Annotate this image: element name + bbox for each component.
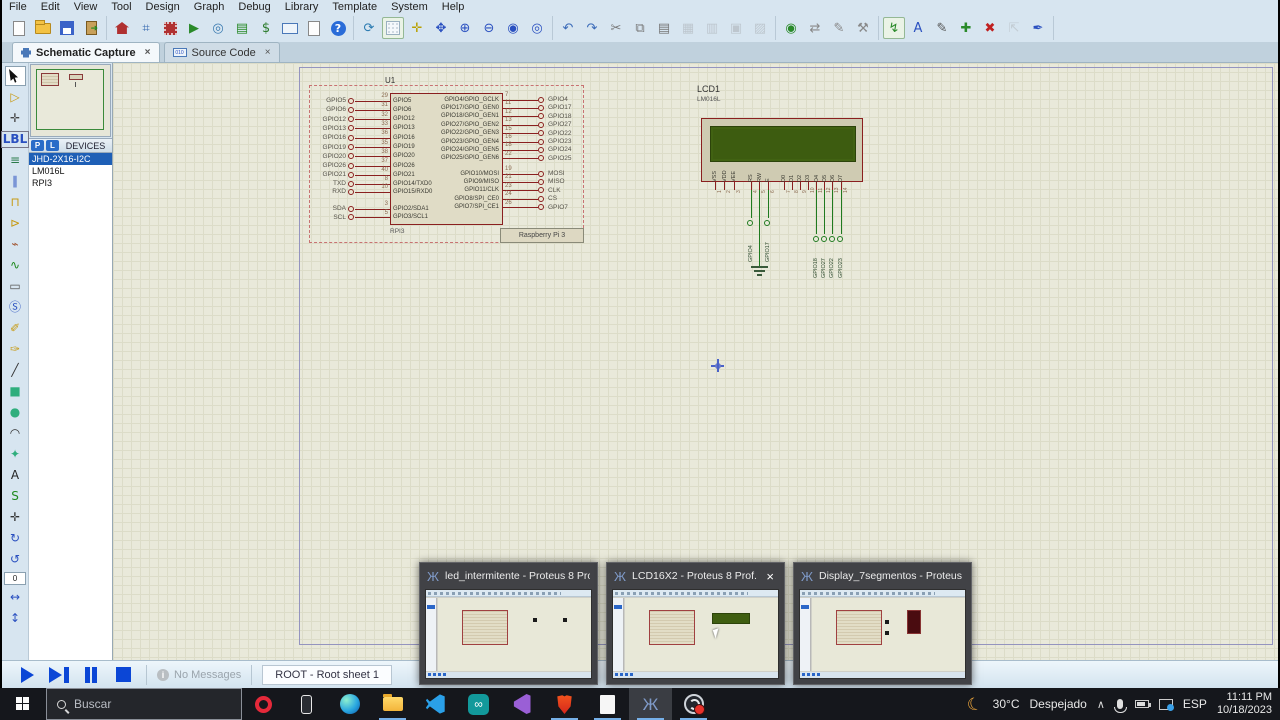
mini-rpi-component	[649, 610, 695, 645]
lcd-pin-stub	[715, 182, 716, 190]
wire-autorouter-button[interactable]: ↯	[883, 17, 905, 39]
terminal-label-GPIO26: GPIO26	[310, 162, 346, 170]
rotate-clockwise-button[interactable]: ↻	[5, 528, 26, 548]
lcd-screen	[710, 126, 856, 162]
pin-name-GPIO18-GPIO_GEN1: GPIO18/GPIO_GEN1	[429, 113, 499, 120]
zoom-all-icon: ◉	[507, 22, 518, 35]
block-delete-icon: ▨	[754, 22, 766, 35]
lcd-pin-label-D2: D2	[797, 164, 804, 182]
menu-tool[interactable]: Tool	[104, 0, 138, 14]
2d-box-mode-icon: ■	[9, 385, 20, 398]
main-toolbar: ⌗▶◎▤$?⟳✛✥⊕⊖◉◎↶↷✂⧉▤▦▥▣▨◉⇄✎⚒↯A✎✚✖⇱✒	[2, 14, 1278, 42]
text-script-mode-button[interactable]: ≡	[5, 150, 26, 170]
mini-window	[426, 590, 591, 678]
preview-thumbnail[interactable]	[612, 589, 779, 679]
terminal-circle	[348, 98, 354, 104]
search-input[interactable]	[74, 697, 204, 711]
terminal-circle	[538, 196, 544, 202]
pin-wire	[503, 207, 538, 208]
proteus-taskbar-button[interactable]: Ж	[629, 688, 672, 720]
2d-circle-mode-button[interactable]: ●	[5, 402, 26, 422]
current-probe-mode-icon: ✑	[10, 343, 20, 356]
lcd-pin-number: 6	[770, 183, 776, 193]
terminal-label-GPIO16: GPIO16	[310, 134, 346, 142]
terminal-GPIO17[interactable]	[764, 220, 770, 226]
new-design-button[interactable]	[8, 17, 30, 39]
component-ref-lcd1: LCD1	[697, 84, 720, 94]
decompose-button[interactable]: ⚒	[852, 17, 874, 39]
menu-graph[interactable]: Graph	[187, 0, 232, 14]
redo-button[interactable]: ↷	[581, 17, 603, 39]
terminal-label-RXD: RXD	[310, 188, 346, 196]
junction-dot-mode-button[interactable]: ✛	[5, 108, 26, 128]
2d-arc-mode-icon: ◠	[10, 427, 20, 440]
arduino-ide-taskbar-button[interactable]: ∞	[457, 688, 500, 720]
y-mirror-button[interactable]: ↕	[5, 608, 26, 628]
edge-icon	[340, 694, 360, 714]
home-page-button[interactable]	[111, 17, 133, 39]
help-icon: ?	[331, 21, 346, 36]
cut-button[interactable]: ✂	[605, 17, 627, 39]
terminal-label-GPIO27: GPIO27	[548, 121, 584, 129]
lcd-pin-number: 10	[810, 183, 816, 193]
pin-name-GPIO4-GPIO_GCLK: GPIO4/GPIO_GCLK	[429, 97, 499, 104]
2d-arc-mode-button[interactable]: ◠	[5, 423, 26, 443]
pcb-layout-icon	[164, 22, 177, 35]
subcircuit-mode-button[interactable]: ⊓	[5, 192, 26, 212]
preview-window-2[interactable]: ЖDisplay_7segmentos - Proteus 8...	[793, 562, 972, 685]
3d-visualizer-icon: ▶	[189, 22, 199, 35]
terminal-label-GPIO25: GPIO25	[548, 155, 584, 163]
lcd-pin-number: 11	[818, 183, 824, 193]
taskbar-search[interactable]	[46, 688, 242, 720]
2d-marker-mode-button[interactable]: ✛	[5, 507, 26, 527]
generator-mode-button[interactable]: Ⓢ	[5, 297, 26, 317]
lcd-pin-label-D6: D6	[830, 164, 837, 182]
generator-mode-icon: Ⓢ	[9, 301, 21, 314]
buses-mode-button[interactable]: ∥	[5, 171, 26, 191]
terminals-mode-icon: ⊳	[10, 217, 20, 230]
tape-recorder-mode-button[interactable]: ▭	[5, 276, 26, 296]
terminal-label-GPIO4: GPIO4	[548, 96, 584, 104]
rpi3-component[interactable]: GPIO529GPIO5GPIO631GPIO6GPIO1232GPIO12GP…	[309, 85, 584, 243]
pin-name-GPIO10-MOSI: GPIO10/MOSI	[429, 171, 499, 178]
pin-number: 33	[362, 121, 388, 128]
close-project-button[interactable]	[80, 17, 102, 39]
redo-icon: ↷	[587, 22, 598, 35]
pick-parts-button[interactable]: ◉	[780, 17, 802, 39]
preview-close-icon[interactable]: ×	[763, 569, 777, 584]
pin-name-GPIO9-MISO: GPIO9/MISO	[429, 179, 499, 186]
pin-number: 12	[505, 109, 531, 116]
mini-lcd	[712, 613, 750, 624]
pin-number: 36	[362, 130, 388, 137]
preview-header: ЖLCD16X2 - Proteus 8 Prof...×	[607, 563, 784, 589]
terminal-label-GPIO17: GPIO17	[765, 230, 772, 262]
gerber-viewer-button[interactable]: ◎	[207, 17, 229, 39]
file-explorer-taskbar-button[interactable]	[371, 688, 414, 720]
pin-name-GPIO23-GPIO_GEN4: GPIO23/GPIO_GEN4	[429, 139, 499, 146]
terminal-wire-GPIO23	[841, 190, 842, 234]
home-page-icon	[115, 22, 129, 34]
terminals-mode-button[interactable]: ⊳	[5, 213, 26, 233]
paste-button[interactable]: ▤	[653, 17, 675, 39]
pin-name-GPIO16: GPIO16	[393, 135, 415, 142]
weather-moon-icon[interactable]: ☾	[965, 694, 984, 714]
pin-name-GPIO11-CLK: GPIO11/CLK	[429, 187, 499, 194]
close-tab-icon[interactable]: ×	[265, 47, 271, 58]
pin-number: 29	[362, 93, 388, 100]
taskbar-apps: ∞Ж	[242, 688, 715, 720]
terminal-wire-GPIO4	[751, 190, 752, 218]
device-list: JHD-2X16-I2CLM016LRPI3	[29, 153, 112, 660]
new-root-sheet-button[interactable]: ✚	[955, 17, 977, 39]
tape-recorder-mode-icon: ▭	[9, 280, 20, 293]
close-project-icon	[86, 21, 97, 35]
rotation-angle-field[interactable]: 0	[4, 572, 26, 585]
component-ref-u1: U1	[385, 76, 395, 85]
goto-parent-sheet-icon: ⇱	[1009, 22, 1020, 35]
pin-wire	[355, 192, 390, 193]
visual-studio-taskbar-button[interactable]	[500, 688, 543, 720]
terminal-label-GPIO19: GPIO19	[310, 144, 346, 152]
lcd-pin-stub	[734, 182, 735, 190]
lcd-pin-number: 8	[794, 183, 800, 193]
battery-icon[interactable]	[1135, 700, 1149, 708]
clock-date: 10/18/2023	[1217, 704, 1272, 717]
no-messages-label: No Messages	[174, 669, 241, 681]
toolbar-group-3: ↶↷✂⧉▤▦▥▣▨	[553, 16, 776, 40]
menu-system[interactable]: System	[384, 0, 435, 14]
raspberry-pi3-box: Raspberry Pi 3	[500, 228, 584, 243]
taskbar-previews: Жled_intermitente - Proteus 8 Pro...ЖLCD…	[419, 562, 972, 685]
mini-selected-device	[801, 605, 809, 609]
toolbar-group-5: ↯A✎✚✖⇱✒	[879, 16, 1054, 40]
zoom-out-button[interactable]: ⊖	[478, 17, 500, 39]
terminal-label-GPIO18: GPIO18	[813, 246, 820, 278]
toolbar-group-0	[4, 16, 107, 40]
windows-logo-icon	[16, 697, 30, 711]
2d-line-mode-button[interactable]: ╱	[5, 360, 26, 380]
proteus-icon: Ж	[643, 696, 659, 713]
pin-name-GPIO26: GPIO26	[393, 163, 415, 170]
block-copy-icon: ▦	[682, 22, 694, 35]
terminal-label-CLK: CLK	[548, 187, 584, 195]
terminal-label-GPIO24: GPIO24	[548, 146, 584, 154]
terminal-circle	[538, 187, 544, 193]
left-panel: P L DEVICES JHD-2X16-I2CLM016LRPI3	[29, 63, 113, 660]
lcd-pin-label-D0: D0	[781, 164, 788, 182]
current-probe-mode-button[interactable]: ✑	[5, 339, 26, 359]
mini-status-bar	[613, 672, 778, 678]
lcd-pin-number: 12	[826, 183, 832, 193]
graph-mode-button[interactable]: ∿	[5, 255, 26, 275]
2d-box-mode-button[interactable]: ■	[5, 381, 26, 401]
rotate-clockwise-icon: ↻	[10, 532, 20, 545]
source-code-tab-icon: 010	[173, 48, 187, 57]
false-origin-button[interactable]: ✛	[406, 17, 428, 39]
phone-link-icon	[301, 695, 312, 714]
lcd-pin-stub	[768, 182, 769, 190]
start-button[interactable]	[0, 688, 46, 720]
preview-title: led_intermitente - Proteus 8 Pro...	[445, 570, 590, 582]
project-notes-icon	[308, 21, 320, 36]
clock[interactable]: 11:11 PM 10/18/2023	[1217, 691, 1272, 717]
2d-line-mode-icon: ╱	[11, 364, 18, 377]
electrical-rule-check-icon: ✒	[1033, 22, 1044, 35]
obs-studio-taskbar-button[interactable]	[672, 688, 715, 720]
lcd-pin-stub	[724, 182, 725, 190]
close-tab-icon[interactable]: ×	[145, 47, 151, 58]
remove-sheet-button[interactable]: ✖	[979, 17, 1001, 39]
packaging-tool-button[interactable]: ✎	[828, 17, 850, 39]
pin-name-GPIO15-RXD0: GPIO15/RXD0	[393, 189, 432, 196]
menu-help[interactable]: Help	[435, 0, 472, 14]
clock-time: 11:11 PM	[1217, 691, 1272, 704]
pin-name-GPIO19: GPIO19	[393, 144, 415, 151]
terminal-wire-GPIO17	[768, 190, 769, 218]
ground-symbol	[757, 274, 762, 276]
selection-mode-button[interactable]	[5, 66, 26, 86]
2d-symbol-mode-button[interactable]: S	[5, 486, 26, 506]
vscode-taskbar-button[interactable]	[414, 688, 457, 720]
terminal-circle	[348, 144, 354, 150]
mini-led	[533, 618, 537, 622]
ground-symbol	[754, 270, 765, 272]
source-code-tool-button[interactable]	[279, 17, 301, 39]
mini-toolbar	[426, 590, 591, 597]
pin-number: 7	[505, 92, 531, 99]
pin-number: 13	[505, 117, 531, 124]
terminal-circle	[348, 181, 354, 187]
terminal-label-MISO: MISO	[548, 178, 584, 186]
remove-sheet-icon: ✖	[985, 22, 996, 35]
junction-dot-mode-icon: ✛	[10, 112, 20, 125]
mini-left-panel	[800, 598, 811, 671]
pick-devices-button[interactable]: P	[31, 140, 44, 151]
tab-schematic-capture[interactable]: Schematic Capture ×	[12, 42, 160, 62]
arduino-ide-icon: ∞	[468, 694, 489, 715]
2d-path-mode-icon: ✦	[10, 448, 20, 461]
terminal-label-GPIO17: GPIO17	[548, 104, 584, 112]
language-indicator[interactable]: ESP	[1183, 697, 1207, 711]
toolbar-group-4: ◉⇄✎⚒	[776, 16, 879, 40]
preview-thumbnail[interactable]	[425, 589, 592, 679]
preview-window-1[interactable]: ЖLCD16X2 - Proteus 8 Prof...×	[606, 562, 785, 685]
stop-button[interactable]	[110, 665, 136, 685]
lcd-pin-number: 2	[726, 183, 732, 193]
electrical-rule-check-button[interactable]: ✒	[1027, 17, 1049, 39]
weather-desc[interactable]: Despejado	[1029, 697, 1086, 711]
devices-header: P L DEVICES	[29, 138, 112, 153]
pin-number: 37	[362, 158, 388, 165]
goto-parent-sheet-button: ⇱	[1003, 17, 1025, 39]
play-button[interactable]	[14, 665, 40, 685]
redraw-display-icon: ⟳	[364, 22, 375, 35]
brave-taskbar-button[interactable]	[543, 688, 586, 720]
terminal-circle	[538, 139, 544, 145]
pin-number: 16	[505, 134, 531, 141]
bill-of-materials-button[interactable]: $	[255, 17, 277, 39]
phone-link-taskbar-button[interactable]	[285, 688, 328, 720]
3d-visualizer-button[interactable]: ▶	[183, 17, 205, 39]
device-pins-mode-icon: ⌁	[11, 238, 18, 251]
rotate-anticlockwise-icon: ↺	[10, 553, 20, 566]
message-area: i No Messages	[157, 669, 241, 681]
2d-text-mode-button[interactable]: A	[5, 465, 26, 485]
center-at-cursor-button[interactable]: ✥	[430, 17, 452, 39]
pin-number: 31	[362, 102, 388, 109]
pin-name-GPIO14-TXD0: GPIO14/TXD0	[393, 181, 432, 188]
pin-name-GPIO2-SDA1: GPIO2/SDA1	[393, 206, 429, 213]
proteus-logo-icon: Ж	[801, 570, 813, 583]
pcb-layout-button[interactable]	[159, 17, 181, 39]
save-design-button[interactable]	[56, 17, 78, 39]
save-design-icon	[60, 21, 74, 35]
project-notes-button[interactable]	[303, 17, 325, 39]
lcd-pin-stub	[784, 182, 785, 190]
library-manager-button[interactable]: L	[46, 140, 59, 151]
terminal-label-GPIO6: GPIO6	[310, 106, 346, 114]
preview-window-0[interactable]: Жled_intermitente - Proteus 8 Pro...	[419, 562, 598, 685]
menu-library[interactable]: Library	[278, 0, 326, 14]
component-mode-button[interactable]: ▷	[5, 87, 26, 107]
schematic-tab-icon	[21, 48, 31, 58]
ground-symbol	[751, 266, 768, 268]
mini-led	[563, 618, 567, 622]
redraw-display-button[interactable]: ⟳	[358, 17, 380, 39]
menu-template[interactable]: Template	[325, 0, 384, 14]
terminal-label-CS: CS	[548, 195, 584, 203]
pin-number: 18	[505, 142, 531, 149]
pin-number: 23	[505, 183, 531, 190]
device-pins-mode-button[interactable]: ⌁	[5, 234, 26, 254]
terminal-label-GPIO23: GPIO23	[548, 138, 584, 146]
device-item-jhd-2x16-i2c[interactable]: JHD-2X16-I2C	[29, 153, 112, 165]
preview-thumbnail[interactable]	[799, 589, 966, 679]
lcd-pin-label-RS: RS	[748, 164, 755, 182]
wire-autorouter-icon: ↯	[889, 22, 900, 35]
make-device-icon: ⇄	[810, 22, 821, 35]
copy-button[interactable]: ⧉	[629, 17, 651, 39]
voltage-probe-mode-button[interactable]: ✐	[5, 318, 26, 338]
overview-rpi-thumb	[41, 73, 59, 86]
toolbar-group-1: ⌗▶◎▤$?	[107, 16, 354, 40]
lcd-pin-stub	[841, 182, 842, 190]
terminal-GPIO23[interactable]	[837, 236, 843, 242]
file-explorer-icon	[383, 697, 403, 711]
schematic-overview[interactable]	[30, 64, 111, 137]
terminal-wire-GPIO18	[816, 190, 817, 234]
pin-number: 3	[362, 201, 388, 208]
pause-button[interactable]	[78, 665, 104, 685]
pin-name-GPIO5: GPIO5	[393, 98, 411, 105]
x-mirror-button[interactable]: ↔	[5, 587, 26, 607]
preview-header: ЖDisplay_7segmentos - Proteus 8...	[794, 563, 971, 589]
graph-mode-icon: ∿	[10, 259, 20, 272]
pin-number: 15	[505, 126, 531, 133]
microphone-icon[interactable]	[1117, 699, 1123, 709]
zoom-in-button[interactable]: ⊕	[454, 17, 476, 39]
mini-selected-device	[427, 605, 435, 609]
component-value-lm016l: LM016L	[697, 96, 721, 103]
terminal-circle	[348, 107, 354, 113]
terminal-circle	[348, 189, 354, 195]
make-device-button[interactable]: ⇄	[804, 17, 826, 39]
terminal-GPIO18[interactable]	[813, 236, 819, 242]
cut-icon: ✂	[611, 22, 622, 35]
help-button[interactable]: ?	[327, 17, 349, 39]
screen: FileEditViewToolDesignGraphDebugLibraryT…	[0, 0, 1280, 720]
terminal-circle	[348, 116, 354, 122]
device-item-rpi3[interactable]: RPI3	[29, 177, 112, 189]
menu-debug[interactable]: Debug	[231, 0, 277, 14]
search-and-tag-button[interactable]: A	[907, 17, 929, 39]
menu-edit[interactable]: Edit	[34, 0, 67, 14]
menu-file[interactable]: File	[2, 0, 34, 14]
terminal-GPIO4[interactable]	[747, 220, 753, 226]
schematic-capture-button[interactable]: ⌗	[135, 17, 157, 39]
selection-mode-icon	[9, 69, 21, 83]
mini-selected-device	[614, 605, 622, 609]
terminal-circle	[348, 214, 354, 220]
device-item-lm016l[interactable]: LM016L	[29, 165, 112, 177]
lcd-body[interactable]: VSSVDDVEERSRWED0D1D2D3D4D5D6D7	[701, 118, 863, 182]
terminal-GPIO22[interactable]	[829, 236, 835, 242]
menu-design[interactable]: Design	[139, 0, 187, 14]
wire-label-mode-button[interactable]: LBL	[5, 129, 26, 149]
terminal-label-GPIO7: GPIO7	[548, 204, 584, 212]
lcd-pin-label-VSS: VSS	[712, 164, 719, 182]
zoom-all-button[interactable]: ◉	[502, 17, 524, 39]
design-explorer-button[interactable]: ▤	[231, 17, 253, 39]
lcd-pin-label-D7: D7	[838, 164, 845, 182]
opera-taskbar-button[interactable]	[242, 688, 285, 720]
undo-button[interactable]: ↶	[557, 17, 579, 39]
toggle-grid-button[interactable]	[382, 17, 404, 39]
terminal-label-GPIO12: GPIO12	[310, 116, 346, 124]
2d-path-mode-button[interactable]: ✦	[5, 444, 26, 464]
preview-title: Display_7segmentos - Proteus 8...	[819, 570, 964, 582]
mini-led	[885, 631, 889, 635]
rotate-anticlockwise-button[interactable]: ↺	[5, 549, 26, 569]
weather-temp[interactable]: 30°C	[993, 697, 1020, 711]
block-rotate-icon: ▣	[730, 22, 742, 35]
notepad-taskbar-button[interactable]	[586, 688, 629, 720]
info-icon: i	[157, 669, 169, 681]
step-button[interactable]	[46, 665, 72, 685]
terminal-circle	[538, 122, 544, 128]
tray-chevron-icon[interactable]: ∧	[1097, 698, 1105, 711]
open-design-button[interactable]	[32, 17, 54, 39]
zoom-area-button[interactable]: ◎	[526, 17, 548, 39]
property-assignment-tool-button[interactable]: ✎	[931, 17, 953, 39]
menu-view[interactable]: View	[67, 0, 105, 14]
mini-left-panel	[426, 598, 437, 671]
brave-icon	[556, 694, 574, 714]
pin-name-GPIO6: GPIO6	[393, 107, 411, 114]
proteus-logo-icon: Ж	[427, 570, 439, 583]
terminal-GPIO27[interactable]	[821, 236, 827, 242]
packaging-tool-icon: ✎	[834, 22, 845, 35]
edge-taskbar-button[interactable]	[328, 688, 371, 720]
pin-number: 22	[505, 151, 531, 158]
terminal-circle	[538, 113, 544, 119]
tab-source-code[interactable]: 010 Source Code ×	[164, 42, 280, 62]
pin-number: 8	[362, 176, 388, 183]
cast-icon[interactable]	[1159, 699, 1173, 710]
terminal-circle	[538, 105, 544, 111]
